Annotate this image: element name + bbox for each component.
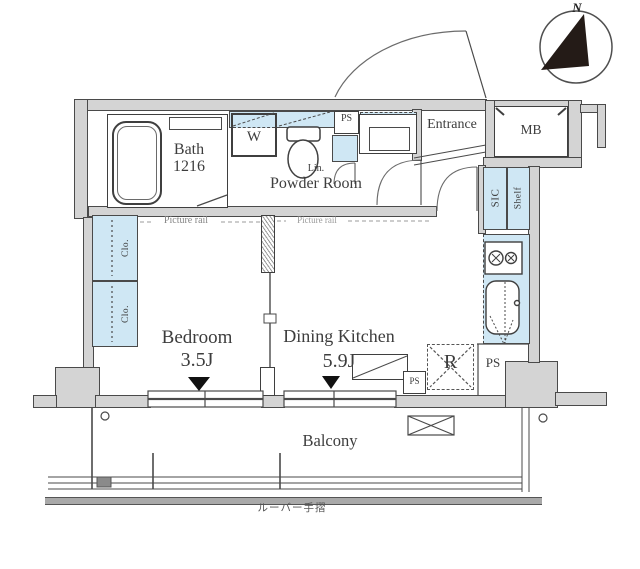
bath-label: Bath 1216	[159, 142, 219, 176]
pipe-space-right-label: PS	[477, 356, 509, 370]
dining-kitchen-label: Dining Kitchen	[270, 327, 408, 346]
entrance-door-arc	[335, 31, 486, 98]
bath-counter	[169, 117, 222, 130]
dining-kitchen-size-label: 5.9J	[270, 351, 408, 372]
wall-wing-right	[555, 392, 607, 406]
wall-notch-vertical	[597, 104, 606, 148]
wall-wing-left	[33, 395, 57, 408]
sliding-door-pocket	[261, 215, 275, 273]
bathtub	[112, 121, 162, 205]
bathtub-inner	[117, 126, 157, 200]
louver-handrail-label: ルーバー手摺	[244, 503, 340, 514]
hall-door-arc	[437, 167, 477, 211]
linen-closet	[332, 135, 358, 162]
bath-size: 1216	[173, 158, 205, 175]
meter-box-label: MB	[494, 123, 568, 137]
wall-top-main	[75, 99, 487, 111]
washer-overhead-shelf	[233, 115, 275, 128]
refrigerator-label: R	[427, 352, 474, 373]
sic-label: SIC	[483, 168, 507, 228]
bedroom-label: Bedroom	[141, 328, 253, 348]
wall-pillar-bottom-right	[505, 361, 558, 408]
compass-north-label: N	[566, 0, 588, 16]
linen-label: Lin.	[298, 164, 334, 175]
floor-plan: N Bath 1216 W Lin. PS Powder Room Entran…	[0, 0, 640, 569]
wall-bottom-c	[394, 395, 507, 408]
wall-bottom-a	[95, 395, 151, 408]
ac-unit-icon	[408, 416, 454, 435]
pipe-space-top-label: PS	[334, 114, 359, 125]
washer-label: W	[231, 130, 277, 146]
picture-rail-label-bedroom: Picture rail	[153, 216, 219, 227]
closet-upper-label: Clo.	[116, 222, 136, 274]
closet-lower-label: Clo.	[116, 288, 136, 340]
kitchen-counter-area	[483, 234, 530, 344]
picture-rail-label-dk: Picture rail	[288, 216, 346, 225]
balcony-label: Balcony	[288, 432, 372, 449]
balcony-railing-block	[97, 477, 111, 487]
sic-shelf-label: Shelf	[507, 168, 530, 228]
washbasin-bowl	[369, 127, 410, 151]
wall-left-upper	[74, 99, 88, 219]
bath-name: Bath	[174, 141, 204, 158]
entrance-step-lines	[414, 145, 486, 165]
bedroom-size-label: 3.5J	[141, 350, 253, 371]
balcony-drain-circles	[101, 412, 547, 422]
powder-room-label: Powder Room	[248, 176, 384, 193]
compass-icon	[540, 11, 612, 83]
washbasin	[359, 114, 417, 154]
pipe-space-mid-label: PS	[403, 377, 426, 386]
balcony-railing	[48, 408, 529, 492]
wall-bottom-b	[261, 395, 285, 408]
entrance-label: Entrance	[416, 118, 488, 133]
wall-pillar-bottom-left	[55, 367, 100, 408]
